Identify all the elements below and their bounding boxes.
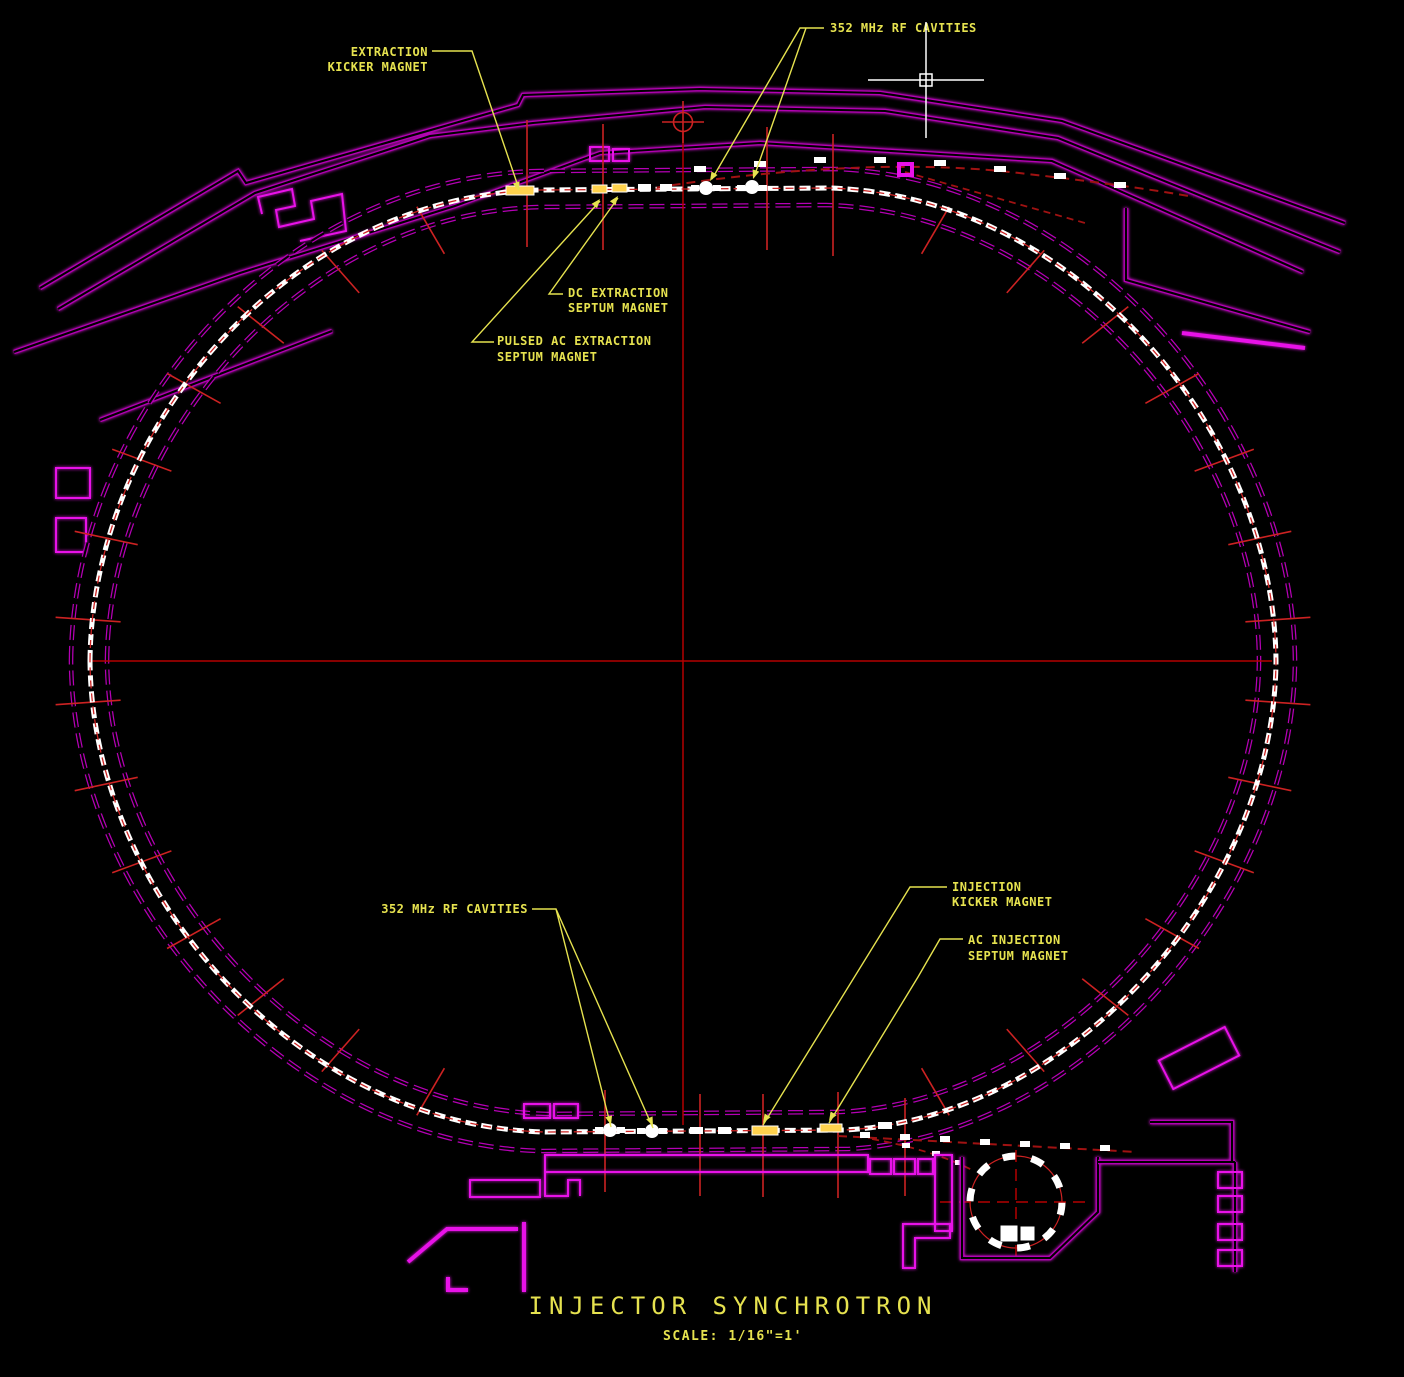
- pulsed-ac-extraction-septum-magnet: [592, 185, 607, 193]
- extraction-kicker-magnet: [506, 186, 534, 195]
- drawing-title: INJECTOR SYNCHROTRON: [529, 1292, 938, 1320]
- label-ac-injection-septum-line2: SEPTUM MAGNET: [968, 949, 1068, 963]
- label-pulsed-ac-extraction-septum-line1: PULSED AC EXTRACTION: [497, 334, 652, 348]
- label-extraction-kicker-line2: KICKER MAGNET: [328, 60, 428, 74]
- label-rf-cavities-bottom: 352 MHz RF CAVITIES: [381, 902, 528, 916]
- label-extraction-kicker-line1: EXTRACTION: [351, 45, 428, 59]
- ac-injection-septum-magnet: [820, 1124, 842, 1132]
- label-pulsed-ac-extraction-septum-line2: SEPTUM MAGNET: [497, 350, 597, 364]
- dc-extraction-septum-magnet: [612, 184, 627, 192]
- label-rf-cavities-top: 352 MHz RF CAVITIES: [830, 21, 977, 35]
- label-ac-injection-septum-line1: AC INJECTION: [968, 933, 1061, 947]
- cad-canvas[interactable]: EXTRACTION KICKER MAGNET 352 MHz RF CAVI…: [0, 0, 1404, 1377]
- label-injection-kicker-line2: KICKER MAGNET: [952, 895, 1052, 909]
- synchrotron-drawing: EXTRACTION KICKER MAGNET 352 MHz RF CAVI…: [0, 0, 1404, 1377]
- label-injection-kicker-line1: INJECTION: [952, 880, 1022, 894]
- injection-kicker-magnet: [752, 1126, 778, 1135]
- label-dc-extraction-septum-line2: SEPTUM MAGNET: [568, 301, 668, 315]
- drawing-scale: SCALE: 1/16"=1': [663, 1329, 803, 1344]
- label-dc-extraction-septum-line1: DC EXTRACTION: [568, 286, 668, 300]
